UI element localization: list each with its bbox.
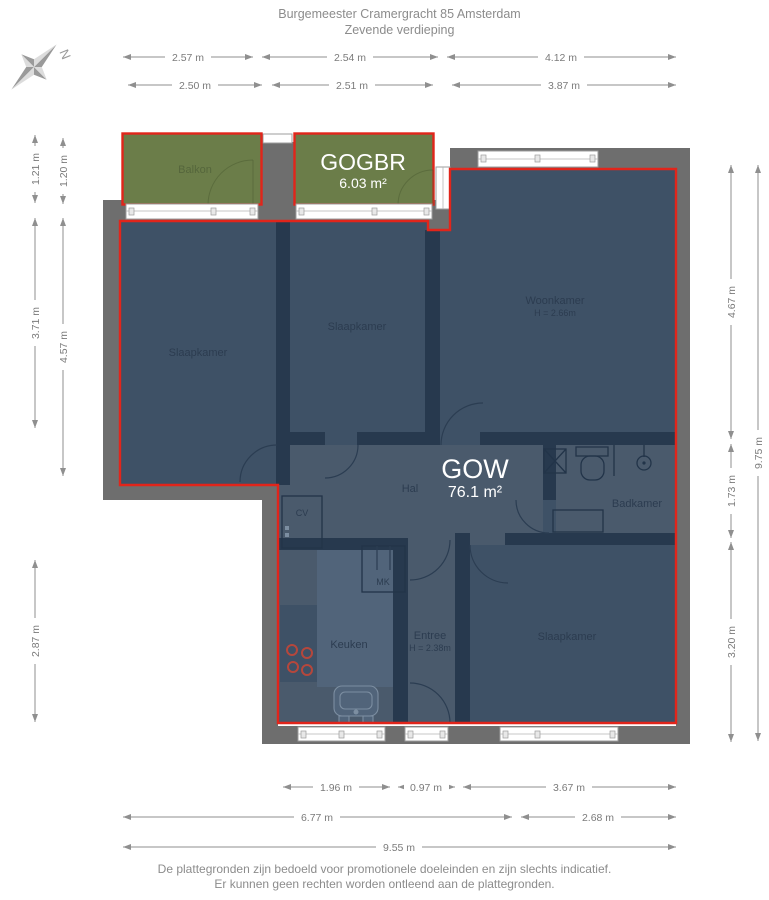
svg-text:4.12 m: 4.12 m: [545, 52, 577, 64]
gow-area: 76.1 m²: [448, 484, 503, 501]
svg-text:6.77 m: 6.77 m: [301, 812, 333, 824]
svg-text:2.50 m: 2.50 m: [179, 80, 211, 92]
svg-text:2.51 m: 2.51 m: [336, 80, 368, 92]
dim-left-in-a: 1.20 m: [57, 138, 71, 204]
compass-icon: N: [0, 32, 74, 103]
dim-bot1-a: 1.96 m: [283, 780, 390, 794]
dim-right-out: 9.75 m: [752, 165, 766, 741]
svg-text:3.20 m: 3.20 m: [726, 626, 738, 658]
slaapkamer1-label: Slaapkamer: [169, 347, 228, 359]
dim-top1-b: 2.54 m: [262, 50, 438, 64]
svg-text:9.55 m: 9.55 m: [383, 842, 415, 854]
dim-bot3: 9.55 m: [123, 840, 676, 854]
dim-bot2-b: 2.68 m: [521, 810, 676, 824]
disclaimer: De plattegronden zijn bedoeld voor promo…: [0, 862, 769, 892]
mk-label: MK: [376, 577, 390, 587]
svg-text:2.57 m: 2.57 m: [172, 52, 204, 64]
dim-left-out-c: 2.87 m: [29, 560, 43, 722]
compass-north-label: N: [56, 47, 73, 61]
dim-left-out-a: 1.21 m: [29, 135, 43, 203]
dim-bot1-b: 0.97 m: [398, 780, 455, 794]
disclaimer-line1: De plattegronden zijn bedoeld voor promo…: [0, 862, 769, 877]
window-slaapkamer3: [500, 727, 618, 741]
svg-text:9.75 m: 9.75 m: [753, 437, 765, 469]
balcony-left: Balkon: [123, 134, 262, 206]
window-woonkamer-top: [478, 151, 598, 167]
dim-right-in-b: 1.73 m: [725, 444, 739, 538]
entree-label: Entree: [414, 630, 446, 642]
svg-text:1.73 m: 1.73 m: [726, 475, 738, 507]
gogbr-label: GOGBR: [320, 149, 406, 175]
svg-text:3.67 m: 3.67 m: [553, 782, 585, 794]
dim-top2-b: 2.51 m: [272, 78, 433, 92]
slaapkamer3-label: Slaapkamer: [538, 631, 597, 643]
keuken-label: Keuken: [330, 639, 367, 651]
dim-top1-a: 2.57 m: [123, 50, 253, 64]
dim-top2-c: 3.87 m: [452, 78, 676, 92]
svg-text:2.87 m: 2.87 m: [30, 625, 42, 657]
svg-text:2.54 m: 2.54 m: [334, 52, 366, 64]
gogbr-area: 6.03 m²: [339, 175, 387, 191]
svg-text:1.20 m: 1.20 m: [58, 155, 70, 187]
woonkamer-height: H = 2.66m: [534, 308, 576, 318]
svg-text:3.71 m: 3.71 m: [30, 307, 42, 339]
svg-text:2.68 m: 2.68 m: [582, 812, 614, 824]
window-balcony-gogbr: [296, 204, 432, 219]
window-woonkamer-side: [436, 167, 450, 209]
floorplan-page: Burgemeester Cramergracht 85 Amsterdam Z…: [0, 0, 769, 900]
dim-top2-a: 2.50 m: [128, 78, 262, 92]
svg-text:3.87 m: 3.87 m: [548, 80, 580, 92]
balcony-gogbr: GOGBR 6.03 m²: [295, 134, 434, 206]
hal-label: Hal: [402, 483, 419, 495]
window-keuken: [298, 727, 385, 741]
dim-left-out-b: 3.71 m: [29, 218, 43, 428]
balkon-label: Balkon: [178, 164, 212, 176]
svg-text:4.67 m: 4.67 m: [726, 286, 738, 318]
cv-label: CV: [296, 508, 309, 518]
dim-bot1-c: 3.67 m: [463, 780, 676, 794]
floorplan-drawing: N Balkon GOGBR 6.03 m²: [0, 0, 769, 900]
window-balcony-left: [126, 204, 258, 219]
dim-bot2-a: 6.77 m: [123, 810, 512, 824]
svg-text:1.21 m: 1.21 m: [30, 153, 42, 185]
entree-height: H = 2.38m: [409, 643, 451, 653]
svg-text:0.97 m: 0.97 m: [410, 782, 442, 794]
dim-right-in-c: 3.20 m: [725, 542, 739, 742]
dim-top1-c: 4.12 m: [447, 50, 676, 64]
woonkamer-label: Woonkamer: [525, 295, 584, 307]
dim-right-in-a: 4.67 m: [725, 165, 739, 439]
dim-left-in-b: 4.57 m: [57, 218, 71, 476]
disclaimer-line2: Er kunnen geen rechten worden ontleend a…: [0, 877, 769, 892]
slaapkamer2-label: Slaapkamer: [328, 321, 387, 333]
svg-text:4.57 m: 4.57 m: [58, 331, 70, 363]
gow-label: GOW: [441, 454, 509, 484]
badkamer-label: Badkamer: [612, 498, 662, 510]
svg-text:1.96 m: 1.96 m: [320, 782, 352, 794]
window-entree: [405, 727, 448, 741]
